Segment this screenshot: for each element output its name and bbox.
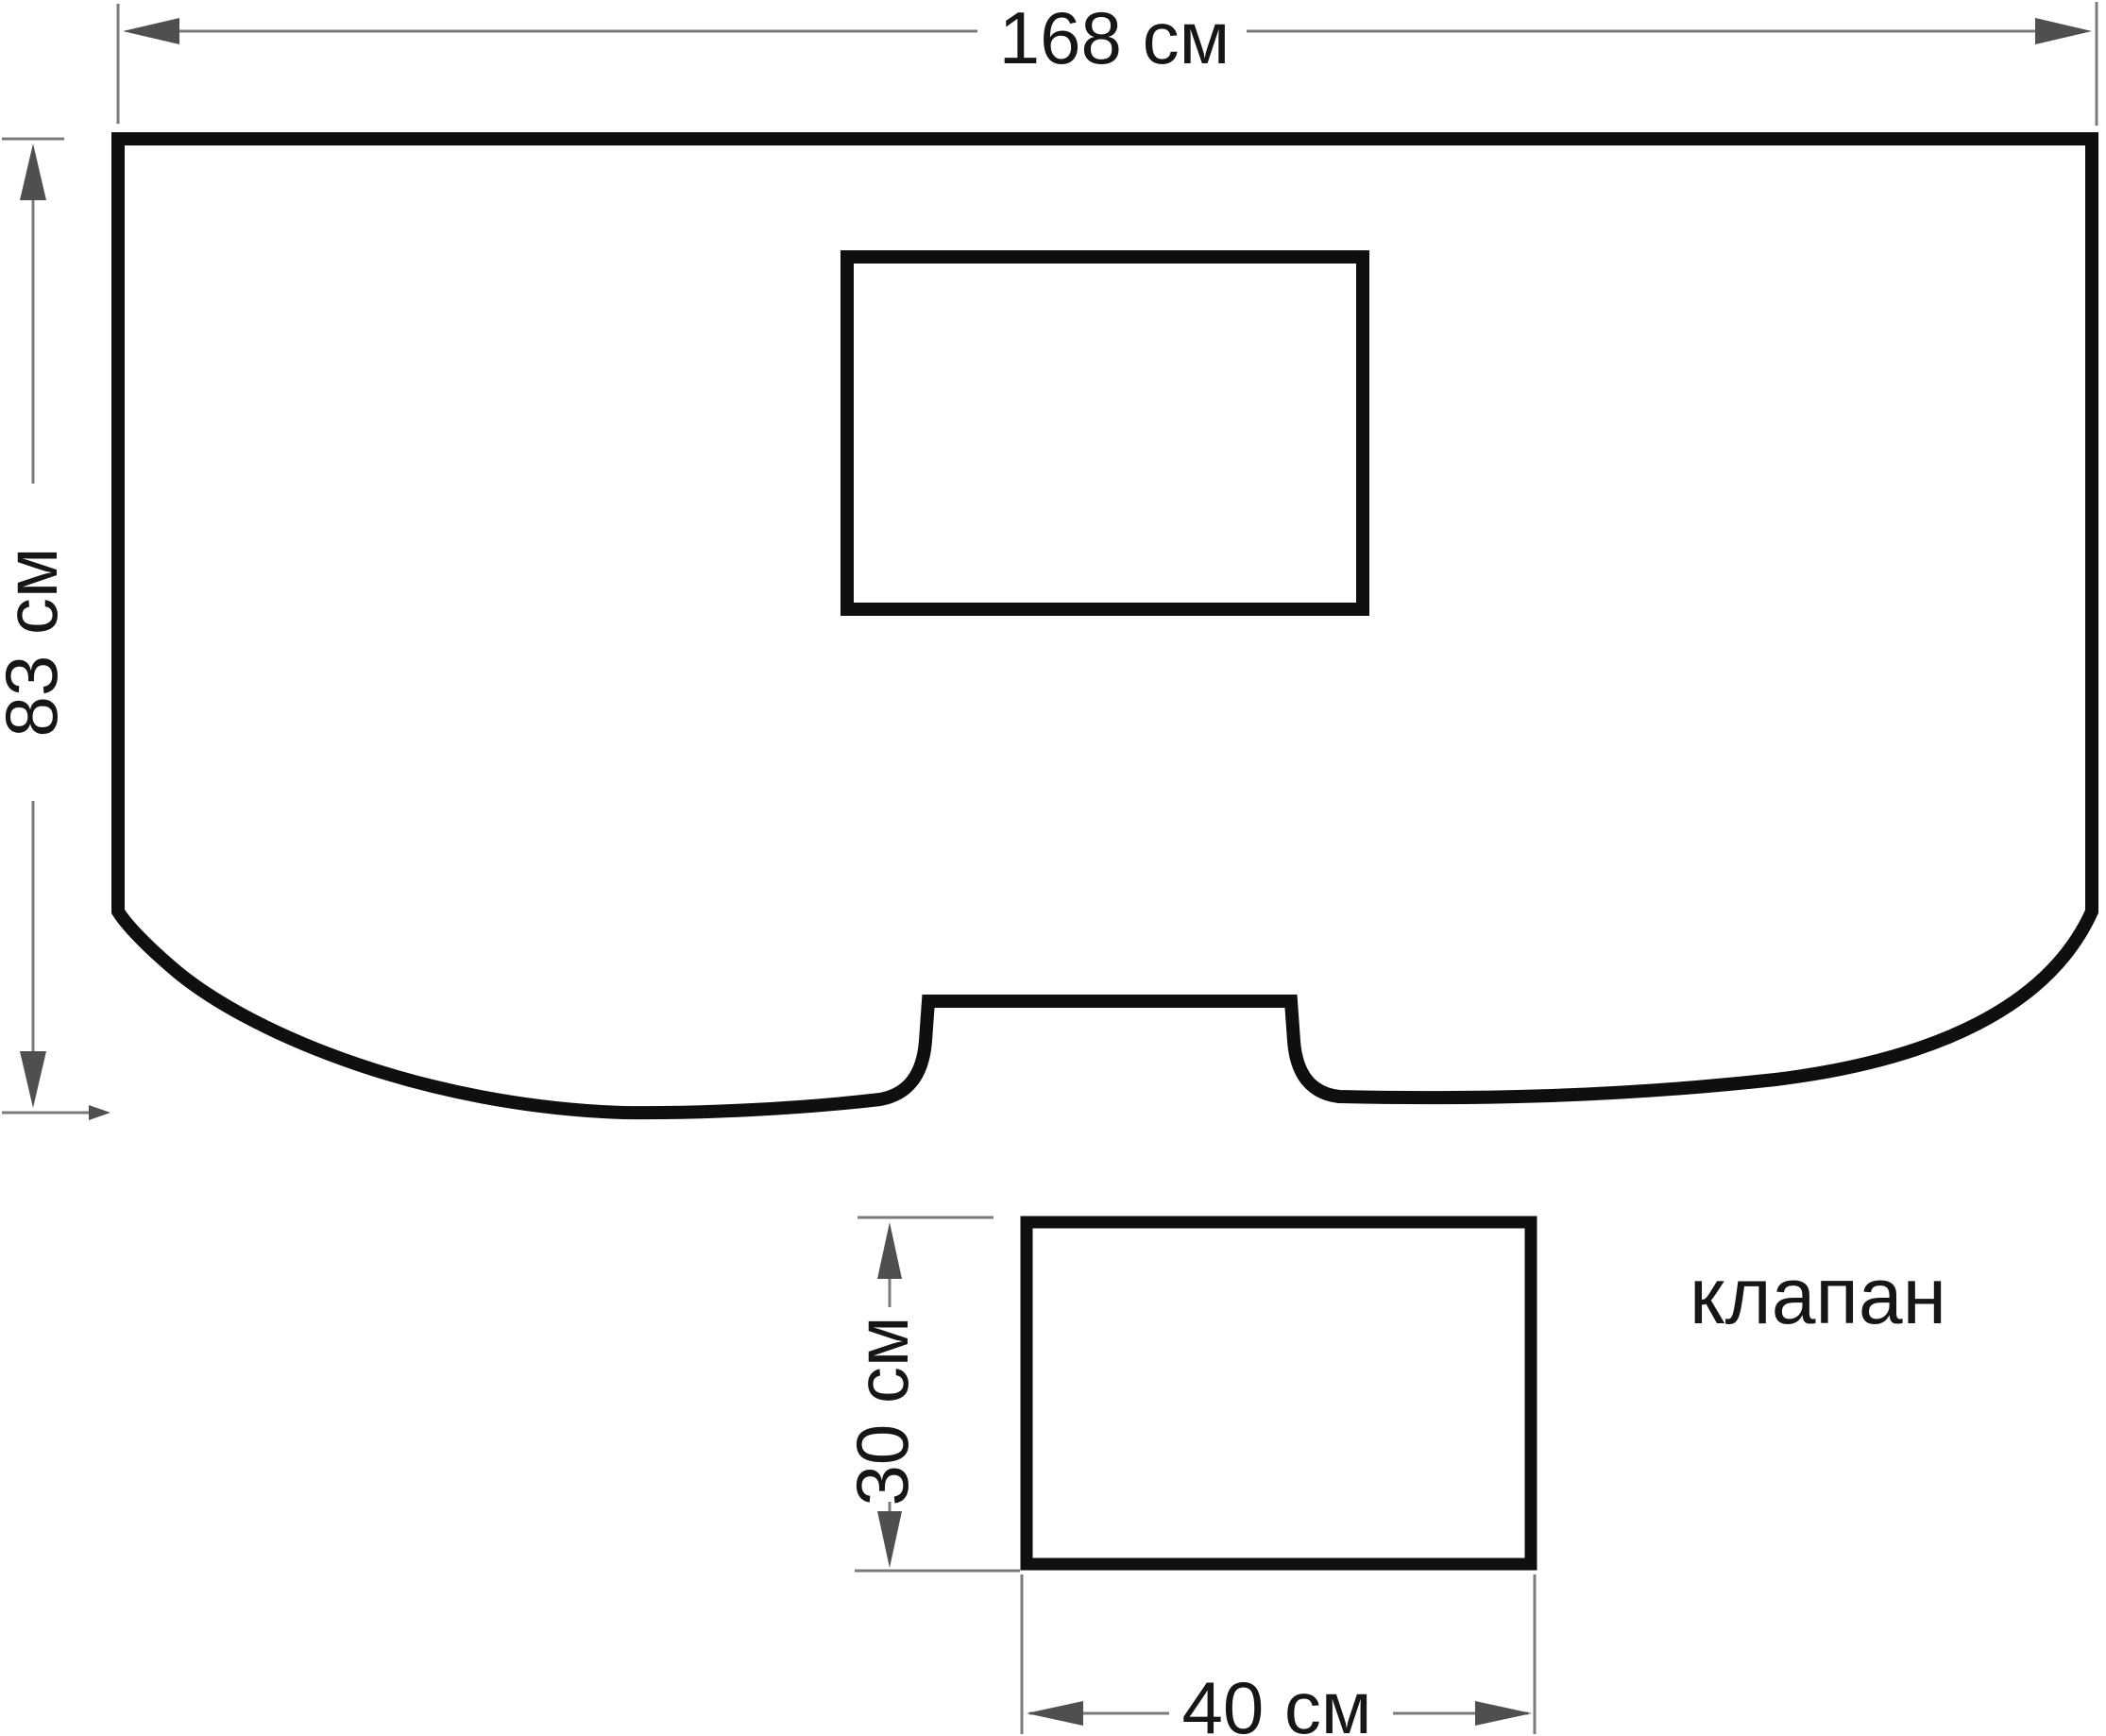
main-width-label: 168 см <box>999 0 1230 79</box>
arrow-left-icon <box>123 18 179 44</box>
arrow-left-icon <box>1027 1701 1083 1726</box>
tick-arrow-right-icon <box>89 1105 110 1120</box>
arrow-down-icon <box>20 1051 46 1108</box>
pattern-diagram: 168 см 83 см 30 см <box>0 0 2106 1736</box>
diagram-canvas: 168 см 83 см 30 см <box>0 0 2106 1736</box>
main-height-label: 83 см <box>0 547 73 737</box>
arrow-down-icon <box>877 1511 902 1568</box>
flap-width-label: 40 см <box>1181 1666 1371 1736</box>
arrow-right-icon <box>2035 18 2092 44</box>
dimension-main-width: 168 см <box>118 0 2097 126</box>
flap-rectangle <box>1027 1222 1531 1564</box>
arrow-up-icon <box>20 144 46 200</box>
arrow-up-icon <box>877 1222 902 1279</box>
dimension-flap-width: 40 см <box>1022 1574 1535 1736</box>
dimension-main-height: 83 см <box>0 139 110 1120</box>
flap-height-label: 30 см <box>841 1316 924 1506</box>
arrow-right-icon <box>1475 1701 1532 1726</box>
flap-name-label: клапан <box>1690 1251 1946 1340</box>
dimension-flap-height: 30 см <box>841 1217 1020 1571</box>
window-cutout <box>847 257 1363 609</box>
